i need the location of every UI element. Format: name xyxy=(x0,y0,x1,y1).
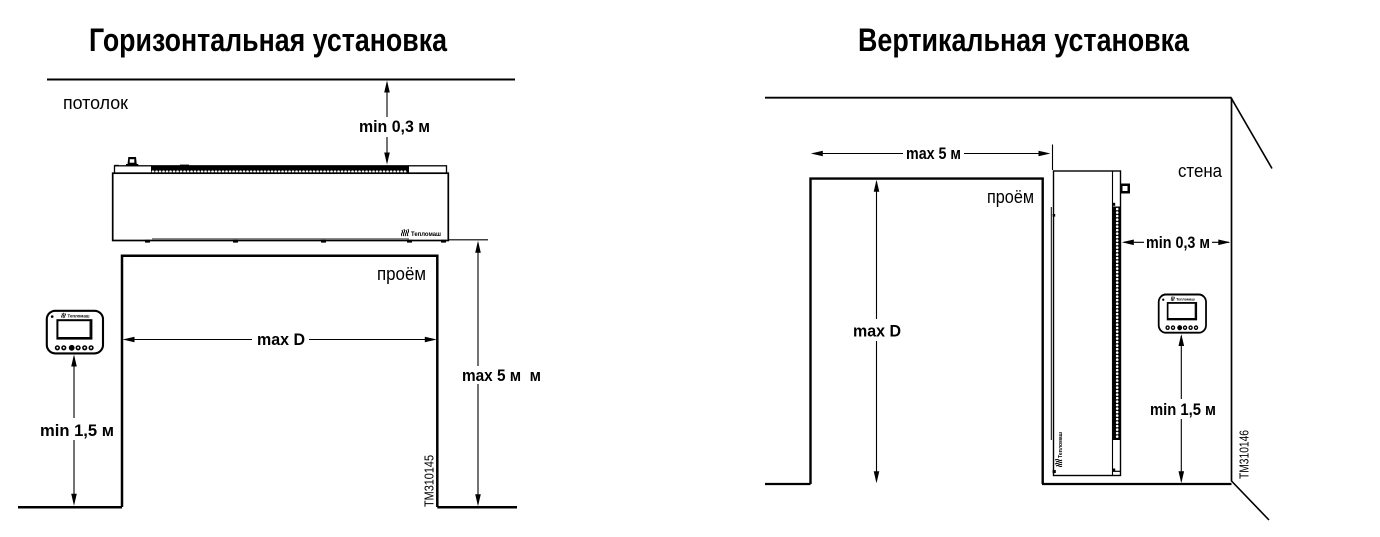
svg-text:max 5 м: max 5 м xyxy=(906,144,961,163)
svg-text:Вертикальная установка: Вертикальная установка xyxy=(858,22,1190,58)
svg-text:TM310145: TM310145 xyxy=(423,455,437,507)
svg-text:min 0,3 м: min 0,3 м xyxy=(1146,233,1210,252)
svg-text:Тепломаш: Тепломаш xyxy=(411,232,441,238)
svg-text:min 0,3 м: min 0,3 м xyxy=(359,117,430,136)
svg-text:стена: стена xyxy=(1178,161,1223,181)
svg-text:Горизонтальная установка: Горизонтальная установка xyxy=(89,22,448,58)
svg-text:потолок: потолок xyxy=(63,93,128,113)
svg-text:max D: max D xyxy=(257,330,305,349)
svg-text:проём: проём xyxy=(987,187,1034,207)
svg-text:max 5 м м: max 5 м м xyxy=(462,366,541,385)
svg-text:Тепломаш: Тепломаш xyxy=(1058,432,1064,458)
svg-text:min 1,5 м: min 1,5 м xyxy=(1150,400,1216,419)
svg-text:Тепломаш: Тепломаш xyxy=(68,314,90,319)
svg-text:min 1,5 м: min 1,5 м xyxy=(40,421,114,440)
svg-text:max D: max D xyxy=(853,322,901,341)
svg-text:проём: проём xyxy=(377,264,426,284)
svg-text:TM310146: TM310146 xyxy=(1238,430,1252,479)
